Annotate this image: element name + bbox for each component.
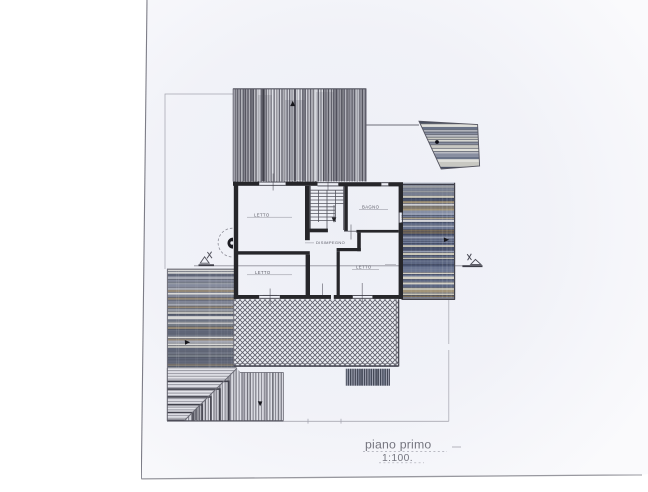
svg-text:LETTO: LETTO [255,270,271,275]
svg-text:LETTO: LETTO [356,265,372,270]
svg-text:BAGNO: BAGNO [362,205,380,210]
svg-text:DISIMPEGNO: DISIMPEGNO [316,240,345,245]
svg-text:1:100.: 1:100. [382,453,413,464]
svg-text:LETTO: LETTO [254,212,270,217]
svg-text:piano primo: piano primo [365,438,431,452]
